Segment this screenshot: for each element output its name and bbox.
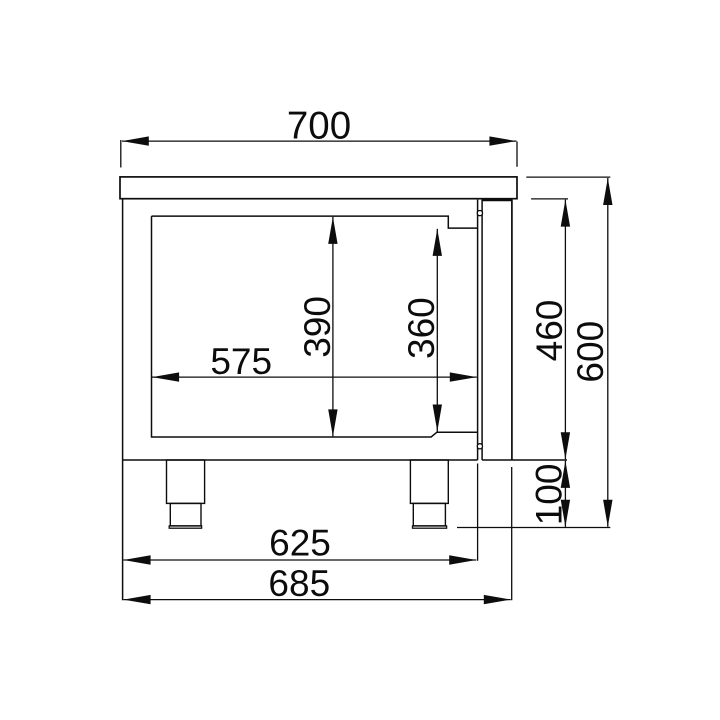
svg-text:460: 460 <box>529 300 570 362</box>
svg-text:600: 600 <box>570 321 611 383</box>
svg-text:625: 625 <box>269 523 331 564</box>
svg-text:100: 100 <box>528 464 569 526</box>
svg-text:700: 700 <box>287 104 351 147</box>
svg-text:685: 685 <box>268 563 330 604</box>
svg-text:360: 360 <box>401 297 442 359</box>
svg-text:575: 575 <box>210 341 272 382</box>
svg-text:390: 390 <box>297 296 338 358</box>
